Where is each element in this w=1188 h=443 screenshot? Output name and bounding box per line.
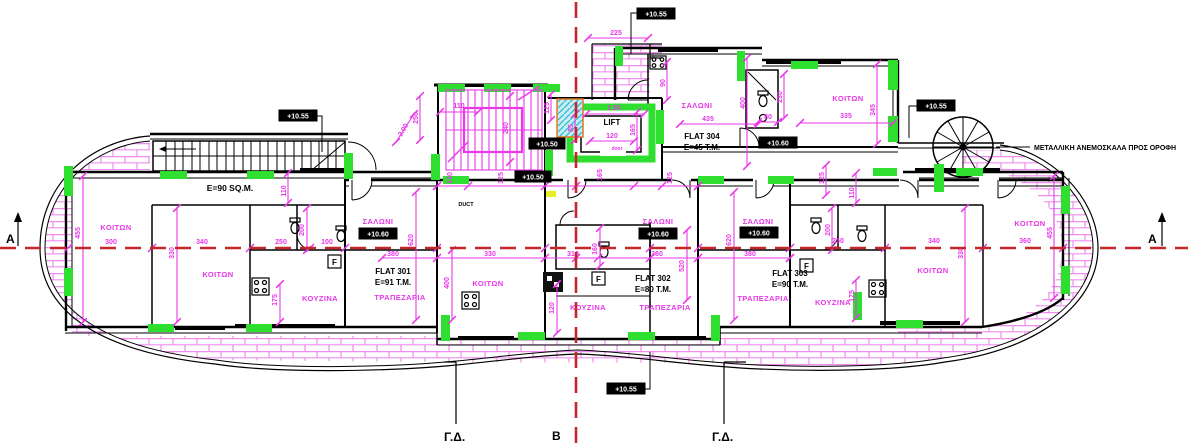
svg-text:125: 125 xyxy=(819,172,826,184)
room-label-bedroom: ΚΟΙΤΩΝ xyxy=(832,94,863,103)
room-label-bedroom: ΚΟΙΤΩΝ xyxy=(100,223,131,232)
svg-text:130: 130 xyxy=(447,172,454,184)
svg-text:+10.55: +10.55 xyxy=(645,12,667,19)
room-label-bedroom: ΚΟΙΤΩΝ xyxy=(472,279,503,288)
flat-301-area: E=91 T.M. xyxy=(375,278,411,287)
section-marker-b: B xyxy=(552,429,561,443)
svg-text:200: 200 xyxy=(825,224,832,236)
room-label-kitchen: ΚΟΥΖΙΝΑ xyxy=(815,298,851,307)
svg-text:85: 85 xyxy=(568,124,575,132)
section-marker-a-left: A xyxy=(6,232,15,246)
flat-303-name: FLAT 303 xyxy=(772,269,808,278)
svg-text:225: 225 xyxy=(610,30,622,37)
flat-301-name: FLAT 301 xyxy=(375,267,411,276)
svg-text:+10.60: +10.60 xyxy=(647,232,669,239)
svg-text:345: 345 xyxy=(870,104,877,116)
svg-text:+10.55: +10.55 xyxy=(287,114,309,121)
boundary-marker-gd-right: Γ.Δ. xyxy=(712,430,733,443)
svg-text:330: 330 xyxy=(169,247,176,259)
room-label-dining: ΤΡΑΠΕΖΑΡΙΑ xyxy=(737,294,789,303)
svg-text:520: 520 xyxy=(679,260,686,272)
svg-text:+10.50: +10.50 xyxy=(522,175,544,182)
room-label-bedroom: ΚΟΙΤΩΝ xyxy=(917,266,948,275)
svg-text:125: 125 xyxy=(498,172,505,184)
duct-label: DUCT xyxy=(458,202,474,208)
room-label-dining: ΤΡΑΠΕΖΑΡΙΑ xyxy=(639,303,691,312)
flat-303-area: E=90 T.M. xyxy=(772,280,808,289)
svg-text:165: 165 xyxy=(597,169,604,181)
svg-text:+10.60: +10.60 xyxy=(767,141,789,148)
svg-text:110: 110 xyxy=(281,185,288,196)
room-label-bedroom: ΚΟΙΤΩΝ xyxy=(202,270,233,279)
room-label-living: ΣΑΛΩΝΙ xyxy=(363,217,394,226)
svg-text:240: 240 xyxy=(503,122,510,134)
column-highlights xyxy=(64,46,1070,341)
room-label-living: ΣΑΛΩΝΙ xyxy=(643,217,674,226)
room-label-bedroom: ΚΟΙΤΩΝ xyxy=(1014,219,1045,228)
svg-text:200: 200 xyxy=(299,224,306,236)
svg-text:+10.50: +10.50 xyxy=(536,142,558,149)
svg-text:435: 435 xyxy=(702,116,714,123)
svg-text:+10.55: +10.55 xyxy=(925,104,947,111)
svg-text:360: 360 xyxy=(1019,238,1031,245)
svg-text:330: 330 xyxy=(484,251,496,258)
boundary-marker-gd-left: Γ.Δ. xyxy=(444,430,465,443)
svg-text:340: 340 xyxy=(928,238,940,245)
fridge-label: F xyxy=(332,258,337,267)
duct-shaft xyxy=(543,272,563,292)
svg-text:90: 90 xyxy=(660,79,667,87)
svg-text:110: 110 xyxy=(453,103,464,110)
flat-302-name: FLAT 302 xyxy=(635,274,671,283)
room-label-living: ΣΑΛΩΝΙ xyxy=(682,101,713,110)
section-marker-a-right: A xyxy=(1148,232,1157,246)
door-label: door xyxy=(611,146,622,152)
left-flat-area: E=90 SQ.M. xyxy=(207,183,254,193)
svg-text:360: 360 xyxy=(651,251,663,258)
svg-text:455: 455 xyxy=(75,227,82,239)
svg-text:250: 250 xyxy=(832,238,844,245)
svg-text:120: 120 xyxy=(549,302,556,314)
svg-text:+10.60: +10.60 xyxy=(367,232,389,239)
svg-text:120: 120 xyxy=(606,133,618,140)
flat-304-area: E=45 T.M. xyxy=(684,143,720,152)
svg-text:175: 175 xyxy=(272,294,279,306)
svg-text:165: 165 xyxy=(630,124,637,136)
svg-text:380: 380 xyxy=(387,251,399,258)
svg-text:250: 250 xyxy=(413,112,420,124)
svg-text:380: 380 xyxy=(744,251,756,258)
svg-text:250: 250 xyxy=(275,239,287,246)
svg-text:125: 125 xyxy=(544,102,551,114)
fridge-label: F xyxy=(596,275,601,284)
svg-text:400: 400 xyxy=(740,97,747,109)
svg-text:1.95: 1.95 xyxy=(607,105,621,112)
threshold-highlight xyxy=(546,191,556,197)
svg-text:100: 100 xyxy=(321,239,333,246)
svg-text:340: 340 xyxy=(196,239,208,246)
room-label-dining: ΤΡΑΠΕΖΑΡΙΑ xyxy=(374,293,426,302)
svg-text:2.00: 2.00 xyxy=(397,123,410,138)
flat-304-name: FLAT 304 xyxy=(684,132,720,141)
floor-plan-drawing: LIFT xyxy=(0,0,1188,443)
svg-text:620: 620 xyxy=(408,234,415,246)
flat-302-area: E=80 T.M. xyxy=(635,285,671,294)
svg-text:455: 455 xyxy=(1047,227,1054,239)
lift-label: LIFT xyxy=(604,118,621,127)
svg-text:+10.55: +10.55 xyxy=(615,387,637,394)
svg-text:300: 300 xyxy=(105,239,117,246)
room-label-living: ΣΑΛΩΝΙ xyxy=(743,217,774,226)
svg-text:110: 110 xyxy=(849,187,856,198)
svg-text:+10.60: +10.60 xyxy=(748,231,770,238)
svg-text:230: 230 xyxy=(777,91,784,103)
svg-text:620: 620 xyxy=(726,234,733,246)
svg-text:160: 160 xyxy=(592,243,599,255)
roof-ladder-note: ΜΕΤΑΛΛΙΚΗ ΑΝΕΜΟΣΚΑΛΑ ΠΡΟΣ ΟΡΟΦΗ xyxy=(1034,145,1176,152)
svg-text:335: 335 xyxy=(840,113,852,120)
svg-text:80: 80 xyxy=(764,114,772,121)
building-walls xyxy=(65,48,1069,345)
floor-plan: LIFT xyxy=(0,0,1188,443)
svg-text:400: 400 xyxy=(444,277,451,289)
internal-stair xyxy=(446,86,542,170)
room-label-kitchen: ΚΟΥΖΙΝΑ xyxy=(302,294,338,303)
svg-text:125: 125 xyxy=(667,172,674,184)
